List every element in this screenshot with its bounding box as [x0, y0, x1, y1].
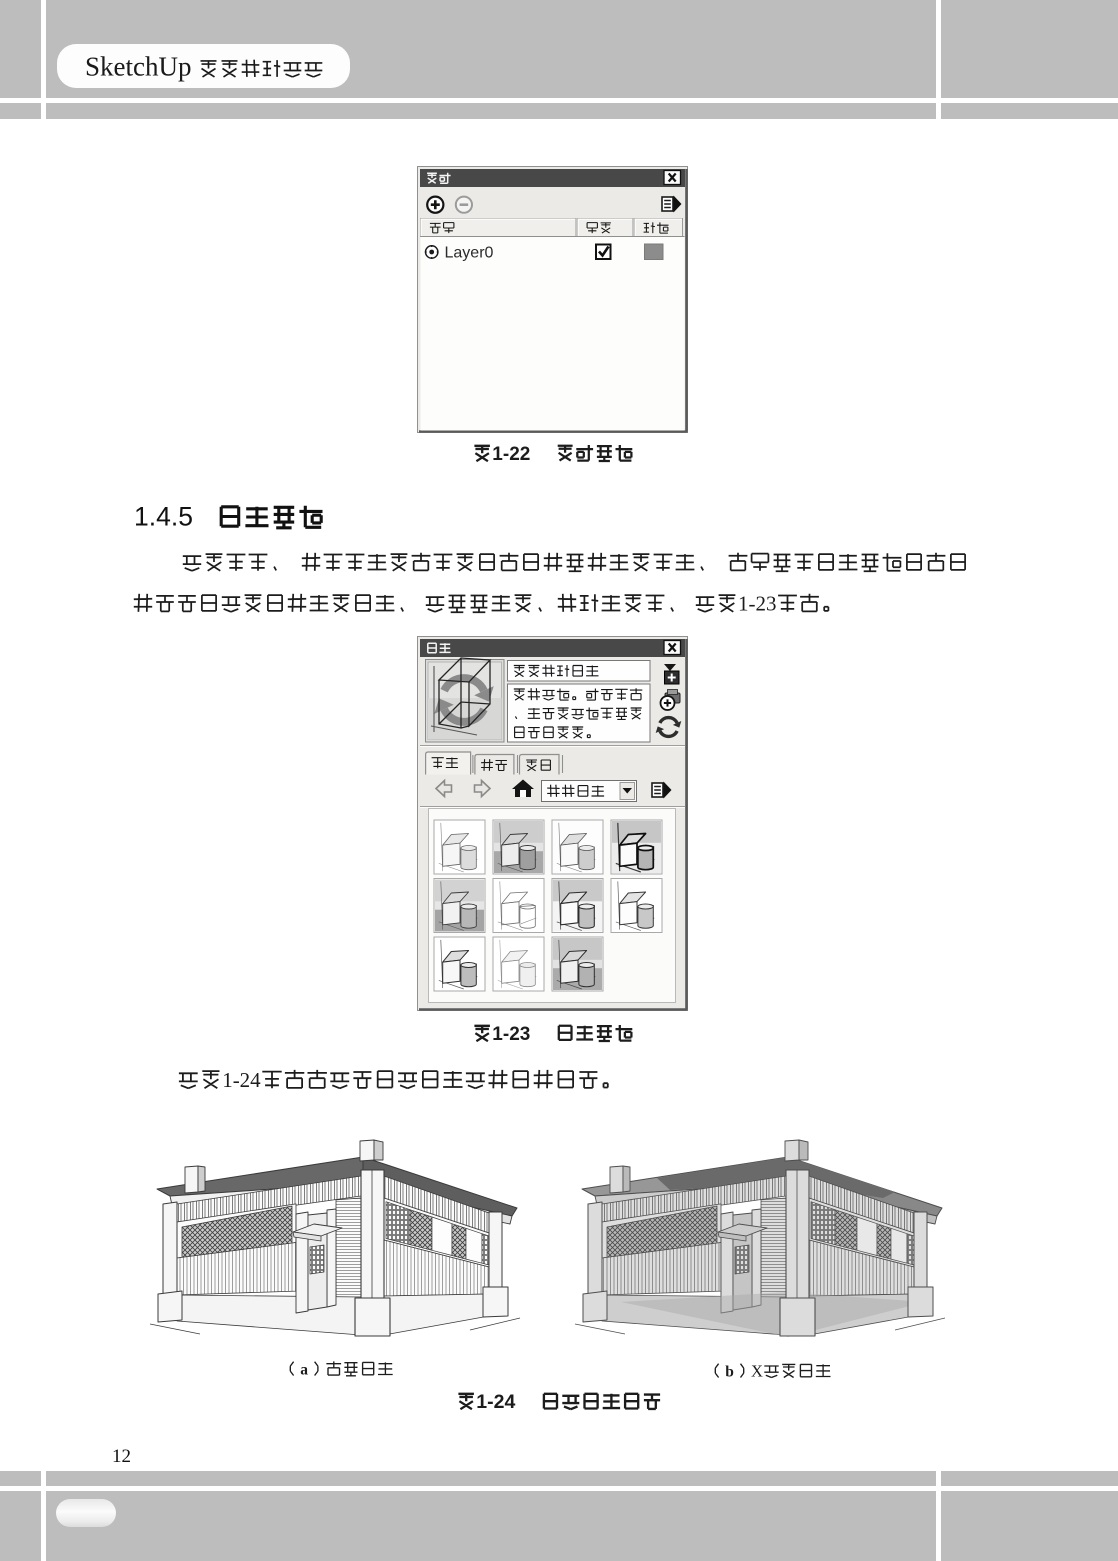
svg-text:1-23: 1-23	[738, 592, 777, 616]
svg-text:SketchUp: SketchUp	[85, 52, 191, 82]
svg-text:1-24: 1-24	[222, 1068, 261, 1092]
svg-text:b: b	[725, 1363, 734, 1380]
svg-text:Layer0: Layer0	[445, 245, 494, 262]
svg-text:1.4.5: 1.4.5	[134, 503, 193, 532]
svg-text:1-22: 1-22	[492, 444, 530, 465]
svg-text:a: a	[300, 1361, 308, 1378]
svg-text:1-24: 1-24	[476, 1391, 515, 1413]
svg-text:1-23: 1-23	[492, 1024, 530, 1045]
svg-text:X: X	[751, 1362, 763, 1380]
